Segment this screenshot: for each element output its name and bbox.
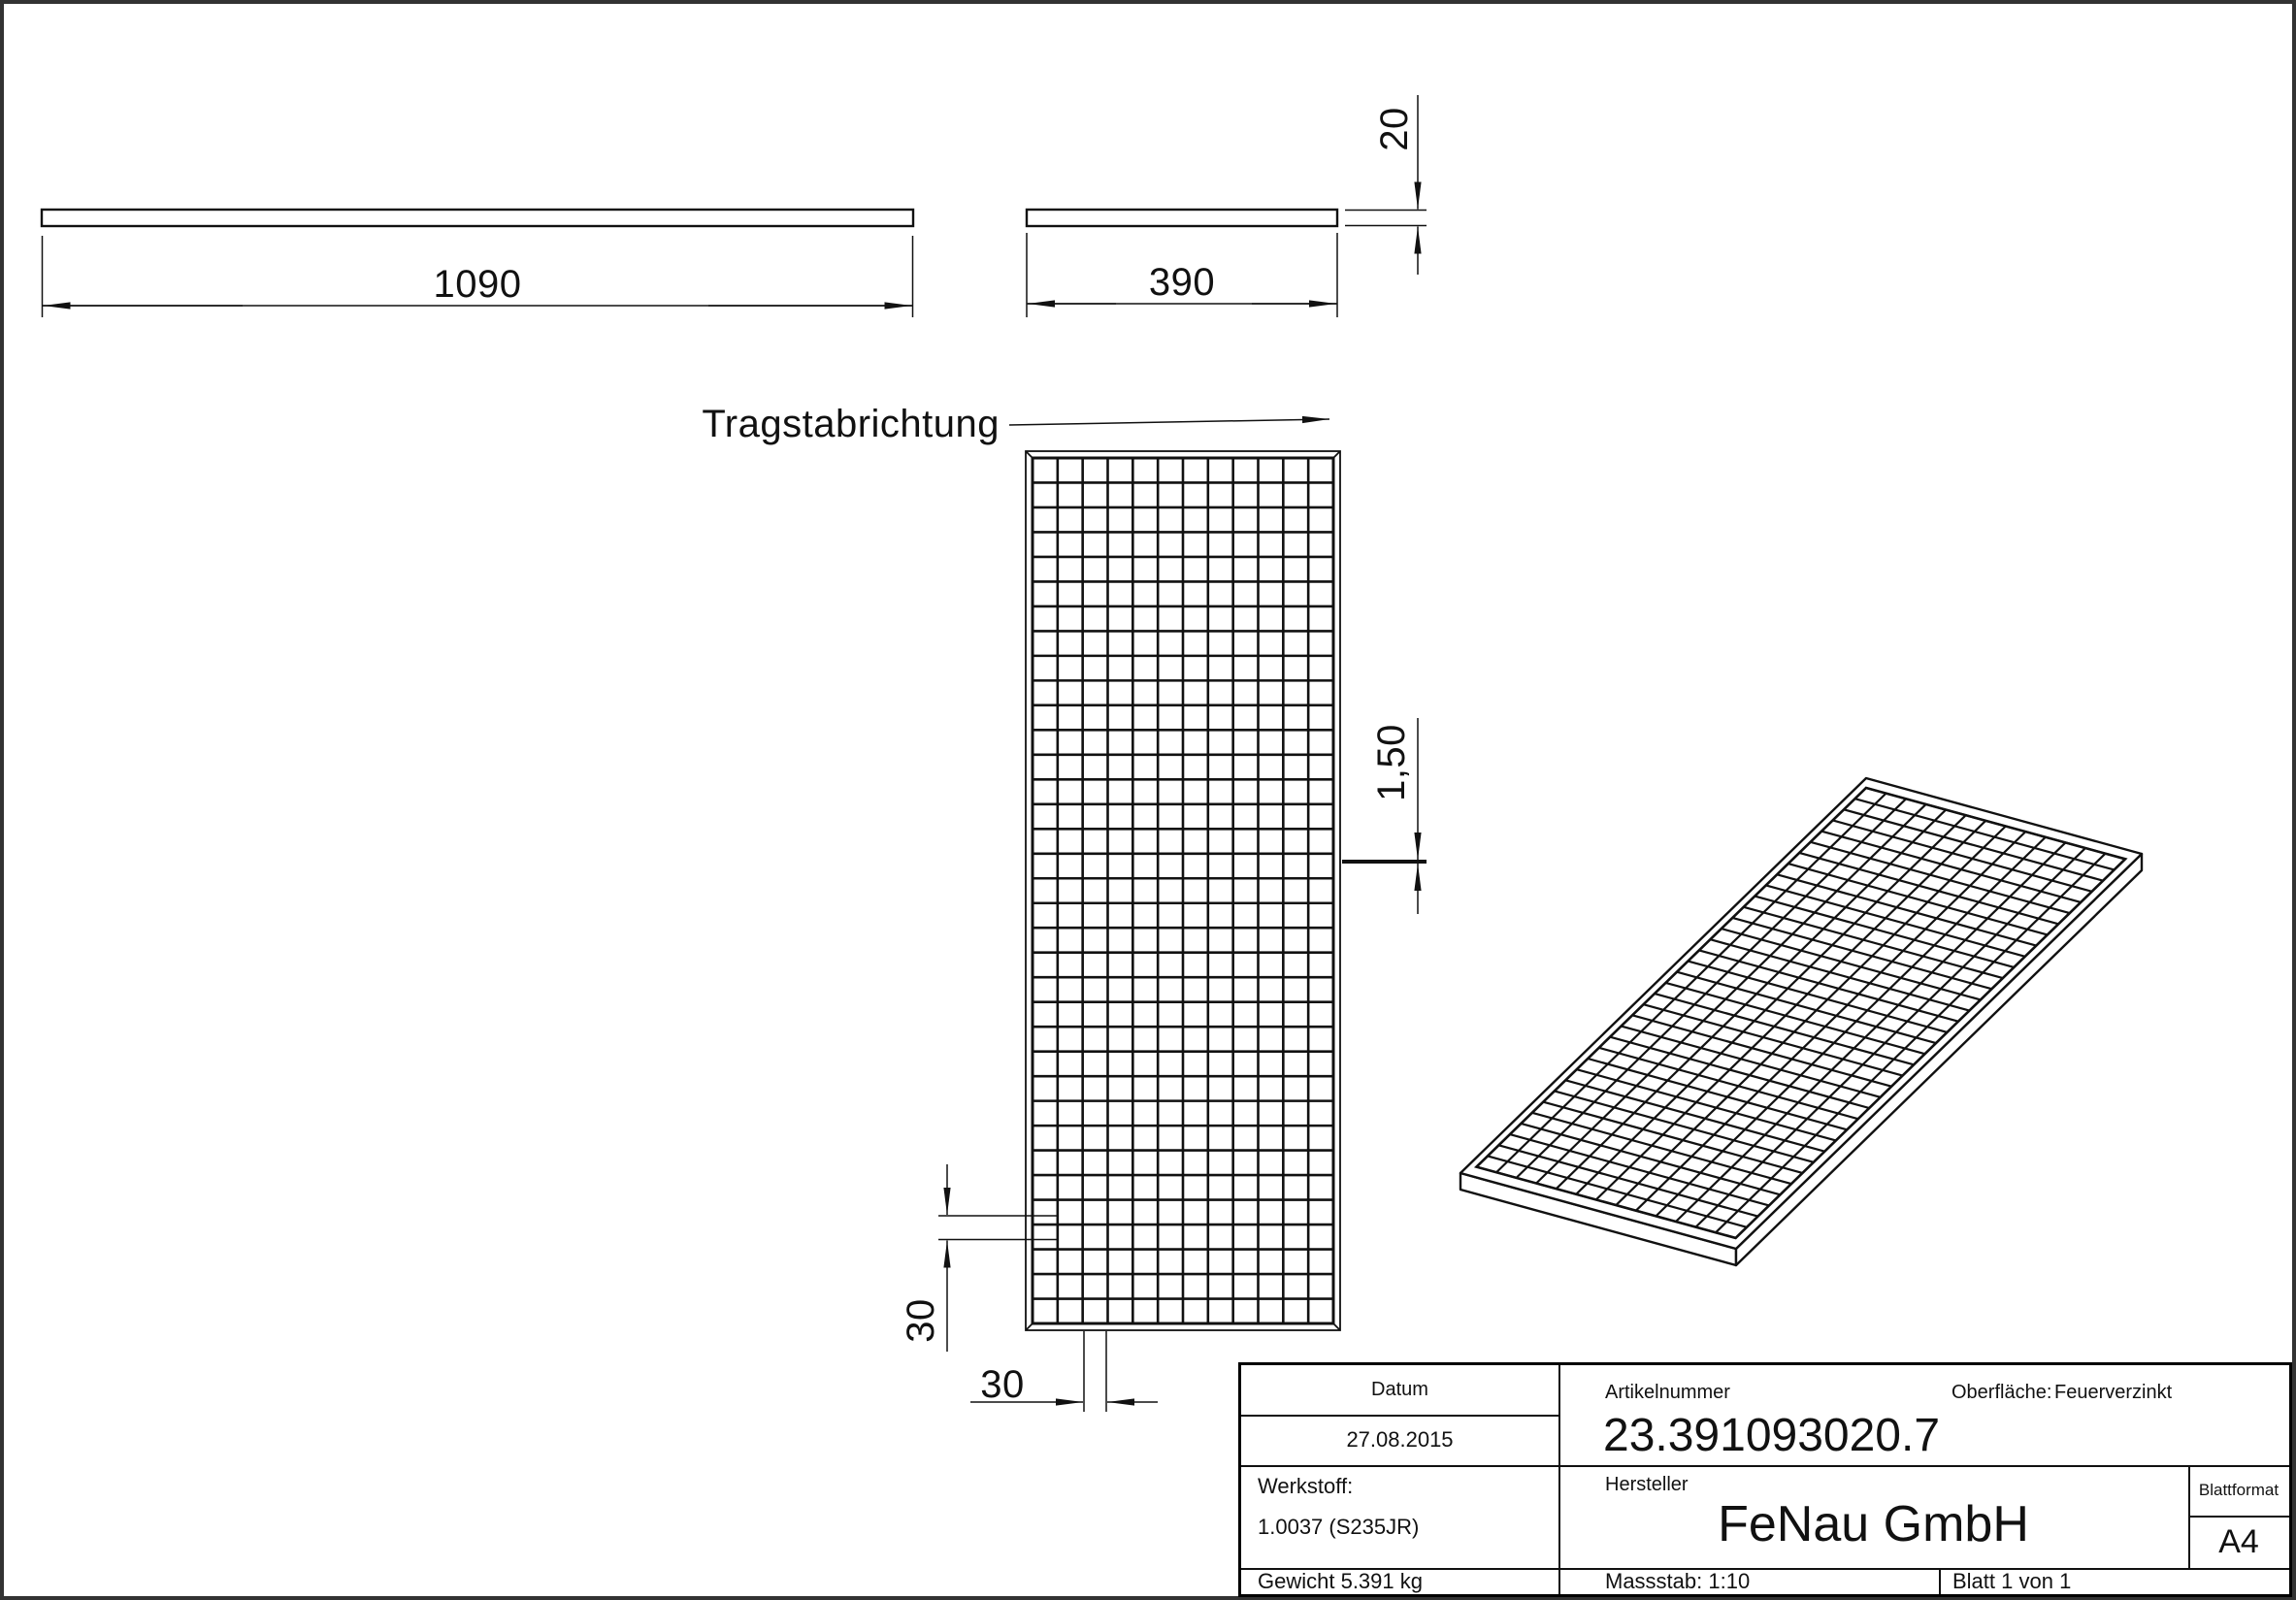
dimension-text-length: 1090 (434, 263, 522, 306)
massstab-value: Massstab: 1:10 (1605, 1568, 1750, 1594)
artikelnummer-value: 23.391093020.7 (1603, 1409, 1940, 1462)
datum-value: 27.08.2015 (1241, 1415, 1558, 1465)
oberflaeche-value: Feuerverzinkt (2054, 1382, 2172, 1404)
oberflaeche-label: Oberfläche: (1952, 1382, 2051, 1404)
divider (1241, 1465, 2289, 1467)
werkstoff-label: Werkstoff: (1258, 1474, 1353, 1499)
blatt-value: Blatt 1 von 1 (1952, 1568, 2071, 1594)
cad-drawing: 1090 390 20 Tragstabrichtung (0, 0, 2296, 1600)
grating-profile-short (1027, 210, 1337, 226)
dimension-text-height: 20 (1373, 107, 1416, 151)
blattformat-label: Blattformat (2188, 1465, 2289, 1516)
divider (1558, 1365, 1560, 1594)
hersteller-label: Hersteller (1605, 1474, 1689, 1496)
bearing-bar-direction-label: Tragstabrichtung (702, 403, 1000, 445)
artikelnummer-label: Artikelnummer (1605, 1382, 1730, 1404)
view-front: Tragstabrichtung 1,50 30 (702, 403, 1427, 1412)
direction-arrow (1009, 419, 1329, 425)
dimension-text-bar-thickness: 1,50 (1370, 724, 1413, 801)
dimension-text-mesh-horizontal: 30 (980, 1363, 1025, 1406)
drawing-sheet: 1090 390 20 Tragstabrichtung (0, 0, 2296, 1600)
gewicht-value: Gewicht 5.391 kg (1258, 1568, 1423, 1594)
view-side-long: 1090 (42, 210, 913, 317)
title-block: Datum 27.08.2015 Artikelnummer Oberfläch… (1238, 1362, 2292, 1597)
view-side-short: 390 20 (1027, 95, 1427, 317)
hersteller-value: FeNau GmbH (1558, 1495, 2188, 1553)
werkstoff-value: 1.0037 (S235JR) (1258, 1515, 1419, 1540)
view-isometric (1460, 778, 2142, 1265)
grating-profile-long (42, 210, 913, 226)
front-mesh-grid (1033, 458, 1333, 1323)
datum-label: Datum (1241, 1365, 1558, 1415)
divider (1939, 1568, 1941, 1594)
dimension-text-mesh-vertical: 30 (900, 1298, 942, 1343)
blattformat-value: A4 (2188, 1516, 2289, 1568)
dimension-text-width: 390 (1149, 261, 1215, 304)
